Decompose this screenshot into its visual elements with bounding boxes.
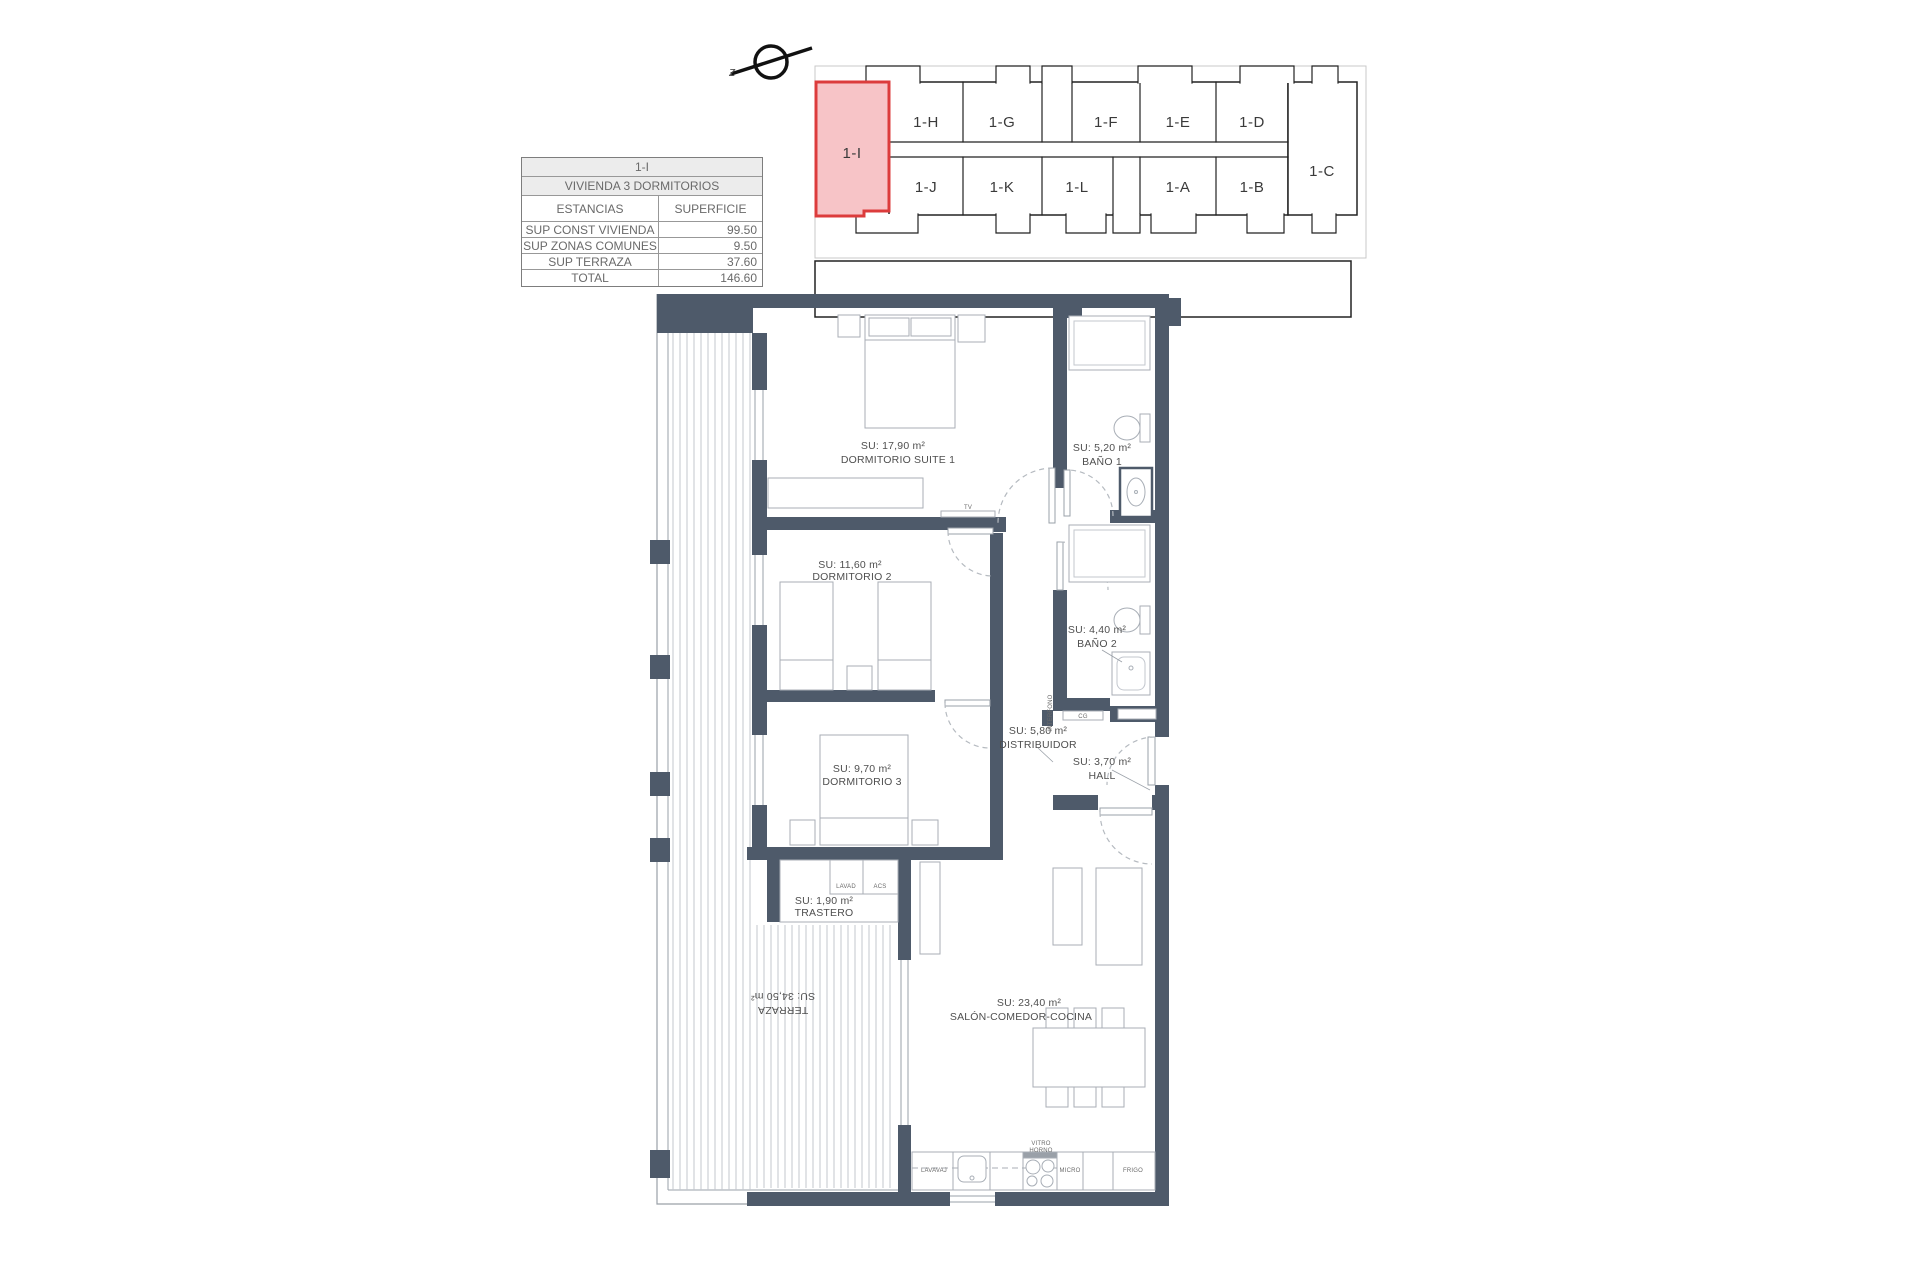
- keyplan-lower-block: [815, 261, 1351, 317]
- unit-label-1a: 1-A: [1166, 179, 1191, 196]
- frigo-label: FRIGO: [1123, 1168, 1143, 1174]
- bano1-area: SU: 5,20 m²: [1073, 442, 1132, 454]
- nightstand: [912, 820, 938, 845]
- burner: [1041, 1175, 1053, 1187]
- dorm3-area: SU: 9,70 m²: [833, 763, 892, 775]
- dorm2-area: SU: 11,60 m²: [818, 559, 882, 571]
- sofa: [1096, 868, 1142, 965]
- horno-label: HORNO: [1029, 1148, 1052, 1154]
- unit-label-1c: 1-C: [1309, 163, 1335, 180]
- stair-bumps-bottom: [856, 214, 1336, 233]
- unit-label-1e: 1-E: [1166, 114, 1191, 131]
- floorplan-sheet: z: [0, 0, 1920, 1280]
- hall-name: HALL: [1088, 770, 1115, 782]
- dorm3-name: DORMITORIO 3: [822, 776, 901, 788]
- suite1-area: SU: 17,90 m²: [861, 440, 926, 452]
- terraza-hatch-main: [753, 925, 895, 1188]
- table-title-row: VIVIENDA 3 DORMITORIOS: [522, 177, 762, 196]
- burner: [1026, 1160, 1040, 1174]
- sofa: [1053, 868, 1082, 945]
- row-value: 146.60: [659, 270, 762, 286]
- trastero-area: SU: 1,90 m²: [795, 895, 854, 907]
- key-plan: 1-I 1-H 1-G 1-F 1-E 1-D 1-C 1-J 1-K 1-L …: [815, 66, 1366, 317]
- burner: [1027, 1176, 1037, 1186]
- desk-suite1: [768, 478, 923, 508]
- dining-table: [1033, 1028, 1145, 1087]
- row-value: 99.50: [659, 222, 762, 237]
- suite1-name: DORMITORIO SUITE 1: [841, 454, 955, 466]
- bed-dorm3: [820, 735, 908, 845]
- bano2-area: SU: 4,40 m²: [1068, 624, 1127, 636]
- terraza-hatch-strip: [671, 333, 751, 1190]
- row-label: SUP CONST VIVIENDA: [522, 222, 659, 237]
- cg-label: CG: [1078, 714, 1088, 720]
- table-unit-row: 1-I: [522, 158, 762, 177]
- chair: [1102, 1008, 1124, 1028]
- unit-label-1d: 1-D: [1239, 114, 1265, 131]
- unit-label-1l: 1-L: [1065, 179, 1088, 196]
- micro-label: MICRO: [1060, 1168, 1081, 1174]
- dorm2-name: DORMITORIO 2: [812, 571, 891, 583]
- row-value: 9.50: [659, 238, 762, 253]
- stair-bumps-top: [866, 66, 1338, 83]
- bed-dorm2: [878, 582, 931, 690]
- cupboard: [920, 862, 940, 954]
- terraza-area: SU: 34,50 m²: [751, 990, 816, 1002]
- nightstand: [790, 820, 815, 845]
- table-row: SUP ZONAS COMUNES 9.50: [522, 238, 762, 254]
- acs-label: ACS: [874, 884, 887, 890]
- chair: [1046, 1087, 1068, 1107]
- north-label: z: [728, 64, 736, 79]
- row-label: TOTAL: [522, 270, 659, 286]
- unit-label-1j: 1-J: [915, 179, 937, 196]
- floor-plan: SU: 17,90 m² DORMITORIO SUITE 1 SU: 5,20…: [650, 294, 1181, 1206]
- distribuidor-area: SU: 5,80 m²: [1009, 725, 1068, 737]
- distribuidor-name: DISTRIBUIDOR: [999, 739, 1077, 751]
- salon-name: SALÓN-COMEDOR-COCINA: [950, 1010, 1092, 1023]
- row-label: SUP TERRAZA: [522, 254, 659, 269]
- unit-info-table: 1-I VIVIENDA 3 DORMITORIOS ESTANCIAS SUP…: [521, 157, 763, 287]
- bano2-name: BAÑO 2: [1077, 637, 1117, 650]
- hall-cabinet: [1118, 709, 1156, 719]
- unit-label-1k: 1-K: [990, 179, 1015, 196]
- unit-label-1f: 1-F: [1094, 114, 1118, 131]
- col-header-estancias: ESTANCIAS: [522, 196, 659, 221]
- table-header-row: ESTANCIAS SUPERFICIE: [522, 196, 762, 222]
- row-label: SUP ZONAS COMUNES: [522, 238, 659, 253]
- toilet-bano1: [1140, 414, 1150, 442]
- nightstand: [958, 315, 985, 342]
- hall-area: SU: 3,70 m²: [1073, 756, 1132, 768]
- tv-unit: [941, 511, 995, 517]
- table-row: TOTAL 146.60: [522, 270, 762, 286]
- unit-label-1i: 1-I: [842, 145, 861, 162]
- plan-drawing: z: [0, 0, 1920, 1280]
- unit-label-1g: 1-G: [989, 114, 1016, 131]
- chair: [1074, 1087, 1096, 1107]
- tv-label: TV: [964, 505, 972, 511]
- bed-dorm2: [780, 582, 833, 690]
- table-row: SUP TERRAZA 37.60: [522, 254, 762, 270]
- vitro-label: VITRO: [1031, 1141, 1050, 1147]
- row-value: 37.60: [659, 254, 762, 269]
- nightstand: [847, 666, 872, 690]
- interfono-label: INTERFONO: [1048, 694, 1054, 731]
- salon-area: SU: 23,40 m²: [997, 997, 1062, 1009]
- trastero-name: TRASTERO: [795, 907, 854, 919]
- unit-label-1b: 1-B: [1240, 179, 1265, 196]
- lavad-label: LAVAD: [836, 884, 856, 890]
- toilet-bano2: [1140, 606, 1150, 634]
- burner: [1042, 1160, 1054, 1172]
- chair: [1102, 1087, 1124, 1107]
- north-arrow-icon: z: [728, 46, 812, 79]
- lavavaj-label: LAVAVAJ: [921, 1168, 947, 1174]
- nightstand: [838, 315, 860, 337]
- table-title: VIVIENDA 3 DORMITORIOS: [565, 180, 719, 192]
- col-header-superficie: SUPERFICIE: [659, 196, 762, 221]
- unit-label-1h: 1-H: [913, 114, 939, 131]
- bano1-name: BAÑO 1: [1082, 455, 1122, 468]
- table-unit-id: 1-I: [635, 161, 649, 173]
- terraza-name: TERRAZA: [758, 1004, 808, 1016]
- table-row: SUP CONST VIVIENDA 99.50: [522, 222, 762, 238]
